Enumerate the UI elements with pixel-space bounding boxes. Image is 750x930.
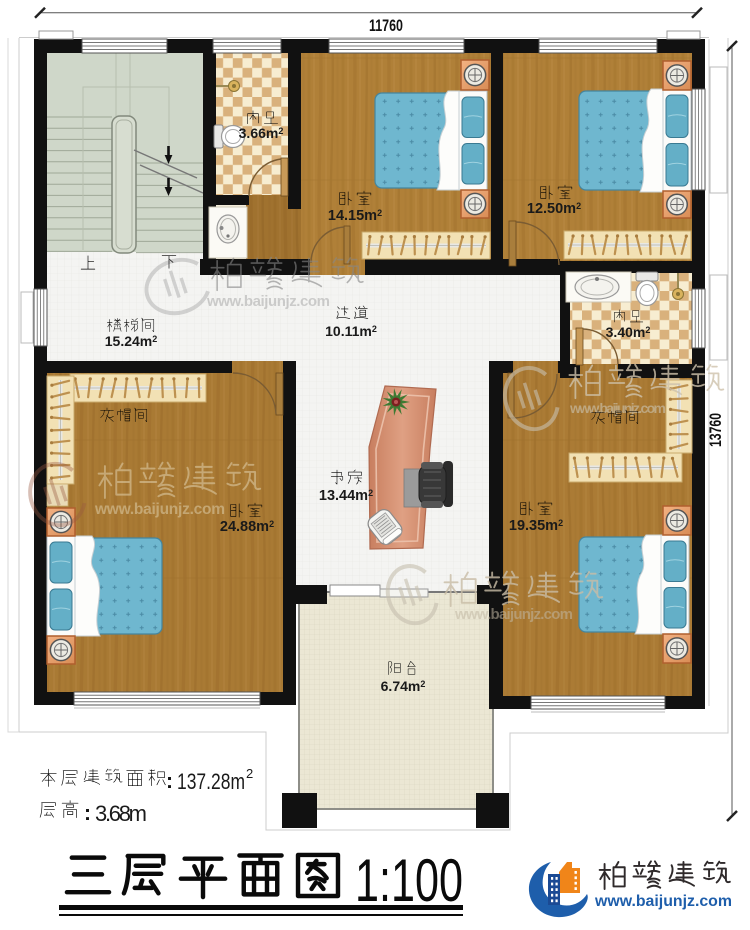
svg-text:137.28m: 137.28m xyxy=(177,769,245,794)
svg-text:1:100: 1:100 xyxy=(355,847,463,914)
svg-text::: : xyxy=(166,770,173,793)
svg-text:www.baijunjz.com: www.baijunjz.com xyxy=(94,501,225,518)
svg-text:13.44m2: 13.44m2 xyxy=(319,488,373,504)
svg-text:www.baijunjz.com: www.baijunjz.com xyxy=(594,893,732,910)
svg-text:www.baijunjz.com: www.baijunjz.com xyxy=(569,400,666,416)
svg-text:2: 2 xyxy=(246,766,253,781)
svg-text::: : xyxy=(84,802,91,825)
svg-text:11760: 11760 xyxy=(369,17,403,35)
svg-text:www.baijunjz.com: www.baijunjz.com xyxy=(454,606,573,623)
svg-text:6.74m2: 6.74m2 xyxy=(381,678,426,694)
svg-text:19.35m2: 19.35m2 xyxy=(509,518,563,534)
svg-text:15.24m2: 15.24m2 xyxy=(105,333,158,349)
svg-text:3.40m2: 3.40m2 xyxy=(606,324,651,340)
svg-text:3.66m2: 3.66m2 xyxy=(239,125,284,141)
svg-text:12.50m2: 12.50m2 xyxy=(527,201,581,217)
svg-text:14.15m2: 14.15m2 xyxy=(328,208,382,224)
svg-text:13760: 13760 xyxy=(707,413,725,447)
svg-text:www.baijunjz.com: www.baijunjz.com xyxy=(206,293,330,310)
svg-text:24.88m2: 24.88m2 xyxy=(220,519,274,535)
svg-text:3.68m: 3.68m xyxy=(95,801,147,826)
svg-text:10.11m2: 10.11m2 xyxy=(325,323,377,339)
